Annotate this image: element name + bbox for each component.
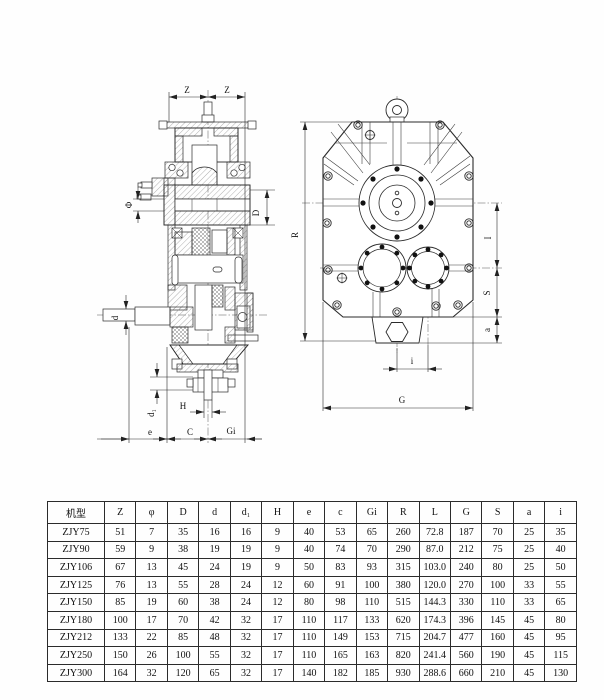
column-header: G — [450, 502, 481, 524]
value-cell: 59 — [105, 541, 136, 559]
column-header: d — [199, 502, 230, 524]
value-cell: 98 — [325, 594, 356, 612]
value-cell: 38 — [167, 541, 198, 559]
value-cell: 93 — [356, 559, 387, 577]
intermediate-shaft — [175, 255, 243, 283]
value-cell: 19 — [230, 559, 261, 577]
value-cell: 17 — [262, 647, 293, 665]
value-cell: 65 — [545, 594, 577, 612]
value-cell: 820 — [388, 647, 419, 665]
value-cell: 80 — [293, 594, 324, 612]
table-row: ZJY25015026100553217110165163820241.4560… — [48, 647, 577, 665]
column-header: Gi — [356, 502, 387, 524]
value-cell: 16 — [199, 524, 230, 542]
value-cell: 32 — [230, 664, 261, 682]
value-cell: 240 — [450, 559, 481, 577]
value-cell: 50 — [293, 559, 324, 577]
value-cell: 60 — [167, 594, 198, 612]
value-cell: 110 — [293, 647, 324, 665]
value-cell: 25 — [513, 524, 544, 542]
dim-label-S: S — [482, 290, 492, 295]
value-cell: 32 — [230, 629, 261, 647]
value-cell: 103.0 — [419, 559, 450, 577]
column-header: φ — [136, 502, 167, 524]
value-cell: 241.4 — [419, 647, 450, 665]
column-header: i — [545, 502, 577, 524]
model-cell: ZJY75 — [48, 524, 105, 542]
dim-label-d: d — [110, 315, 120, 320]
value-cell: 150 — [105, 647, 136, 665]
value-cell: 80 — [545, 611, 577, 629]
value-cell: 26 — [136, 647, 167, 665]
value-cell: 74 — [325, 541, 356, 559]
value-cell: 45 — [513, 611, 544, 629]
value-cell: 48 — [199, 629, 230, 647]
value-cell: 40 — [293, 541, 324, 559]
gear-2 — [212, 285, 223, 307]
value-cell: 91 — [325, 576, 356, 594]
value-cell: 120.0 — [419, 576, 450, 594]
table-row: ZJY1508519603824128098110515144.33301103… — [48, 594, 577, 612]
value-cell: 76 — [105, 576, 136, 594]
value-cell: 19 — [230, 541, 261, 559]
value-cell: 65 — [356, 524, 387, 542]
value-cell: 55 — [167, 576, 198, 594]
dim-label-G1: Gi — [227, 426, 236, 436]
value-cell: 24 — [199, 559, 230, 577]
column-header: R — [388, 502, 419, 524]
model-cell: ZJY300 — [48, 664, 105, 682]
value-cell: 16 — [230, 524, 261, 542]
value-cell: 33 — [513, 594, 544, 612]
value-cell: 35 — [545, 524, 577, 542]
table-row: ZJY2121332285483217110149153715204.74771… — [48, 629, 577, 647]
value-cell: 330 — [450, 594, 481, 612]
value-cell: 32 — [136, 664, 167, 682]
value-cell: 210 — [482, 664, 513, 682]
dim-label-G: G — [399, 395, 406, 405]
value-cell: 85 — [105, 594, 136, 612]
column-header: Z — [105, 502, 136, 524]
dim-label-phi: Φ — [124, 201, 134, 208]
value-cell: 477 — [450, 629, 481, 647]
value-cell: 100 — [167, 647, 198, 665]
value-cell: 17 — [262, 629, 293, 647]
value-cell: 19 — [199, 541, 230, 559]
value-cell: 110 — [356, 594, 387, 612]
column-header: H — [262, 502, 293, 524]
value-cell: 144.3 — [419, 594, 450, 612]
value-cell: 85 — [167, 629, 198, 647]
lower-housing — [170, 345, 248, 372]
value-cell: 45 — [167, 559, 198, 577]
model-cell: ZJY90 — [48, 541, 105, 559]
catalog-page: Z Z Φ D d d₁ H — [0, 0, 604, 700]
value-cell: 153 — [356, 629, 387, 647]
value-cell: 45 — [513, 629, 544, 647]
dim-label-e: e — [148, 427, 152, 437]
column-header: c — [325, 502, 356, 524]
value-cell: 40 — [545, 541, 577, 559]
dimension-H: H — [180, 400, 226, 418]
value-cell: 75 — [482, 541, 513, 559]
value-cell: 50 — [545, 559, 577, 577]
value-cell: 165 — [325, 647, 356, 665]
value-cell: 32 — [230, 611, 261, 629]
column-header: a — [513, 502, 544, 524]
value-cell: 33 — [513, 576, 544, 594]
spec-table: 机型ZφDdd₁HecGiRLGSai ZJY75517351616940536… — [47, 501, 577, 682]
dimension-e-c-g1: e C Gi — [97, 327, 262, 443]
value-cell: 25 — [513, 541, 544, 559]
value-cell: 204.7 — [419, 629, 450, 647]
column-header: e — [293, 502, 324, 524]
value-cell: 51 — [105, 524, 136, 542]
dimension-i: i — [383, 345, 442, 372]
value-cell: 110 — [482, 594, 513, 612]
output-flange-right — [407, 247, 449, 289]
value-cell: 83 — [325, 559, 356, 577]
value-cell: 380 — [388, 576, 419, 594]
dimension-D: D — [250, 190, 275, 225]
value-cell: 7 — [136, 524, 167, 542]
value-cell: 715 — [388, 629, 419, 647]
column-header: d₁ — [230, 502, 261, 524]
value-cell: 396 — [450, 611, 481, 629]
table-row: ZJY1801001770423217110117133620174.33961… — [48, 611, 577, 629]
column-header: 机型 — [48, 502, 105, 524]
value-cell: 930 — [388, 664, 419, 682]
lifting-eye — [386, 99, 408, 122]
value-cell: 9 — [262, 541, 293, 559]
table-row: ZJY10667134524199508393315103.0240802550 — [48, 559, 577, 577]
value-cell: 174.3 — [419, 611, 450, 629]
value-cell: 72.8 — [419, 524, 450, 542]
value-cell: 145 — [482, 611, 513, 629]
spec-header-row: 机型ZφDdd₁HecGiRLGSai — [48, 502, 577, 524]
table-row: ZJY75517351616940536526072.8187702535 — [48, 524, 577, 542]
value-cell: 60 — [293, 576, 324, 594]
column-header: L — [419, 502, 450, 524]
column-header: S — [482, 502, 513, 524]
value-cell: 140 — [293, 664, 324, 682]
table-row: ZJY30016432120653217140182185930288.6660… — [48, 664, 577, 682]
value-cell: 17 — [262, 664, 293, 682]
dim-label-R: R — [290, 232, 300, 238]
model-cell: ZJY106 — [48, 559, 105, 577]
value-cell: 160 — [482, 629, 513, 647]
value-cell: 187 — [450, 524, 481, 542]
model-cell: ZJY125 — [48, 576, 105, 594]
value-cell: 55 — [545, 576, 577, 594]
value-cell: 12 — [262, 594, 293, 612]
drain-boss — [372, 317, 423, 343]
value-cell: 560 — [450, 647, 481, 665]
model-cell: ZJY212 — [48, 629, 105, 647]
value-cell: 110 — [293, 611, 324, 629]
left-flange-bolts — [137, 178, 168, 200]
value-cell: 22 — [136, 629, 167, 647]
value-cell: 100 — [356, 576, 387, 594]
value-cell: 24 — [230, 576, 261, 594]
value-cell: 55 — [199, 647, 230, 665]
gear-1 — [192, 228, 210, 257]
value-cell: 120 — [167, 664, 198, 682]
value-cell: 24 — [230, 594, 261, 612]
value-cell: 290 — [388, 541, 419, 559]
value-cell: 149 — [325, 629, 356, 647]
value-cell: 315 — [388, 559, 419, 577]
value-cell: 13 — [136, 576, 167, 594]
main-cylinder — [164, 178, 250, 225]
value-cell: 164 — [105, 664, 136, 682]
value-cell: 28 — [199, 576, 230, 594]
value-cell: 182 — [325, 664, 356, 682]
dim-label-I: I — [483, 237, 493, 240]
input-shaft — [202, 102, 214, 122]
side-section-view: Z Z Φ D d d₁ H — [95, 82, 285, 452]
value-cell: 660 — [450, 664, 481, 682]
dim-label-a: a — [482, 328, 492, 332]
model-cell: ZJY180 — [48, 611, 105, 629]
value-cell: 25 — [513, 559, 544, 577]
output-flange-left — [358, 244, 406, 292]
dim-label-d1: d₁ — [146, 409, 156, 417]
value-cell: 100 — [105, 611, 136, 629]
value-cell: 53 — [325, 524, 356, 542]
dim-label-i: i — [411, 356, 414, 366]
model-cell: ZJY150 — [48, 594, 105, 612]
bottom-hub — [187, 370, 235, 400]
value-cell: 45 — [513, 664, 544, 682]
value-cell: 70 — [356, 541, 387, 559]
front-view: R I S a i G — [290, 95, 520, 425]
value-cell: 115 — [545, 647, 577, 665]
input-flange-circle — [359, 165, 435, 241]
table-row: ZJY1257613552824126091100380120.02701003… — [48, 576, 577, 594]
dim-label-H: H — [180, 401, 187, 411]
value-cell: 65 — [199, 664, 230, 682]
value-cell: 17 — [262, 611, 293, 629]
value-cell: 17 — [136, 611, 167, 629]
value-cell: 67 — [105, 559, 136, 577]
dim-label-D: D — [251, 209, 261, 216]
value-cell: 9 — [136, 541, 167, 559]
value-cell: 80 — [482, 559, 513, 577]
value-cell: 70 — [167, 611, 198, 629]
value-cell: 32 — [230, 647, 261, 665]
column-header: D — [167, 502, 198, 524]
value-cell: 100 — [482, 576, 513, 594]
value-cell: 19 — [136, 594, 167, 612]
dim-label-C: C — [187, 427, 193, 437]
value-cell: 45 — [513, 647, 544, 665]
value-cell: 260 — [388, 524, 419, 542]
table-row: ZJY90599381919940747029087.0212752540 — [48, 541, 577, 559]
dim-label-z-right: Z — [224, 85, 230, 95]
value-cell: 95 — [545, 629, 577, 647]
value-cell: 133 — [356, 611, 387, 629]
value-cell: 515 — [388, 594, 419, 612]
value-cell: 620 — [388, 611, 419, 629]
value-cell: 288.6 — [419, 664, 450, 682]
value-cell: 87.0 — [419, 541, 450, 559]
value-cell: 130 — [545, 664, 577, 682]
value-cell: 13 — [136, 559, 167, 577]
value-cell: 117 — [325, 611, 356, 629]
dim-label-z-left: Z — [184, 85, 190, 95]
value-cell: 212 — [450, 541, 481, 559]
value-cell: 270 — [450, 576, 481, 594]
value-cell: 185 — [356, 664, 387, 682]
value-cell: 9 — [262, 524, 293, 542]
value-cell: 190 — [482, 647, 513, 665]
value-cell: 40 — [293, 524, 324, 542]
value-cell: 9 — [262, 559, 293, 577]
model-cell: ZJY250 — [48, 647, 105, 665]
value-cell: 12 — [262, 576, 293, 594]
value-cell: 133 — [105, 629, 136, 647]
value-cell: 163 — [356, 647, 387, 665]
spec-table-wrap: 机型ZφDdd₁HecGiRLGSai ZJY75517351616940536… — [47, 501, 577, 682]
value-cell: 42 — [199, 611, 230, 629]
value-cell: 38 — [199, 594, 230, 612]
value-cell: 110 — [293, 629, 324, 647]
value-cell: 70 — [482, 524, 513, 542]
value-cell: 35 — [167, 524, 198, 542]
spec-table-body: ZJY75517351616940536526072.8187702535ZJY… — [48, 524, 577, 682]
